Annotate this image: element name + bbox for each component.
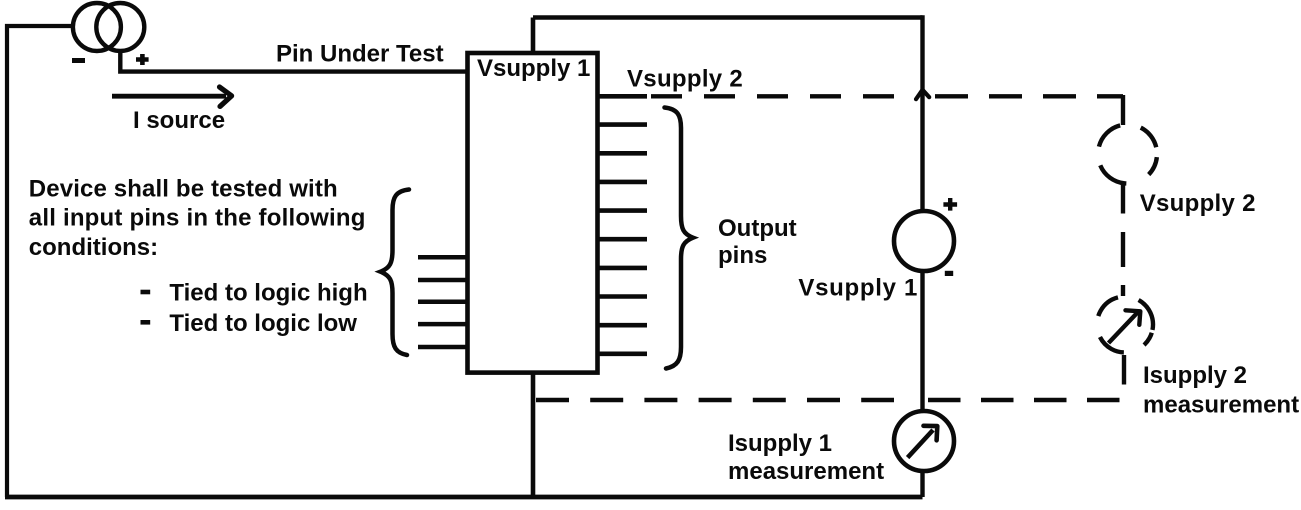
svg-text:conditions:: conditions: xyxy=(29,234,158,261)
svg-text:Vsupply 2: Vsupply 2 xyxy=(627,66,743,93)
svg-text:Isupply 1: Isupply 1 xyxy=(728,430,832,457)
svg-text:Output: Output xyxy=(718,215,797,242)
svg-text:Vsupply 1: Vsupply 1 xyxy=(477,55,590,82)
svg-text:Device shall be tested with: Device shall be tested with xyxy=(29,175,338,202)
svg-text:pins: pins xyxy=(718,242,767,269)
svg-text:Pin Under Test: Pin Under Test xyxy=(276,41,444,68)
svg-text:measurement: measurement xyxy=(728,458,884,485)
svg-text:all input pins in the followin: all input pins in the following xyxy=(29,205,366,232)
svg-text:Tied to logic low: Tied to logic low xyxy=(169,310,357,337)
svg-text:I source: I source xyxy=(133,107,225,134)
svg-text:measurement: measurement xyxy=(1143,392,1299,419)
svg-text:Vsupply 1: Vsupply 1 xyxy=(798,275,918,302)
svg-text:Vsupply 2: Vsupply 2 xyxy=(1140,190,1256,217)
svg-text:Tied to logic high: Tied to logic high xyxy=(169,280,367,307)
svg-text:Isupply 2: Isupply 2 xyxy=(1143,362,1247,389)
